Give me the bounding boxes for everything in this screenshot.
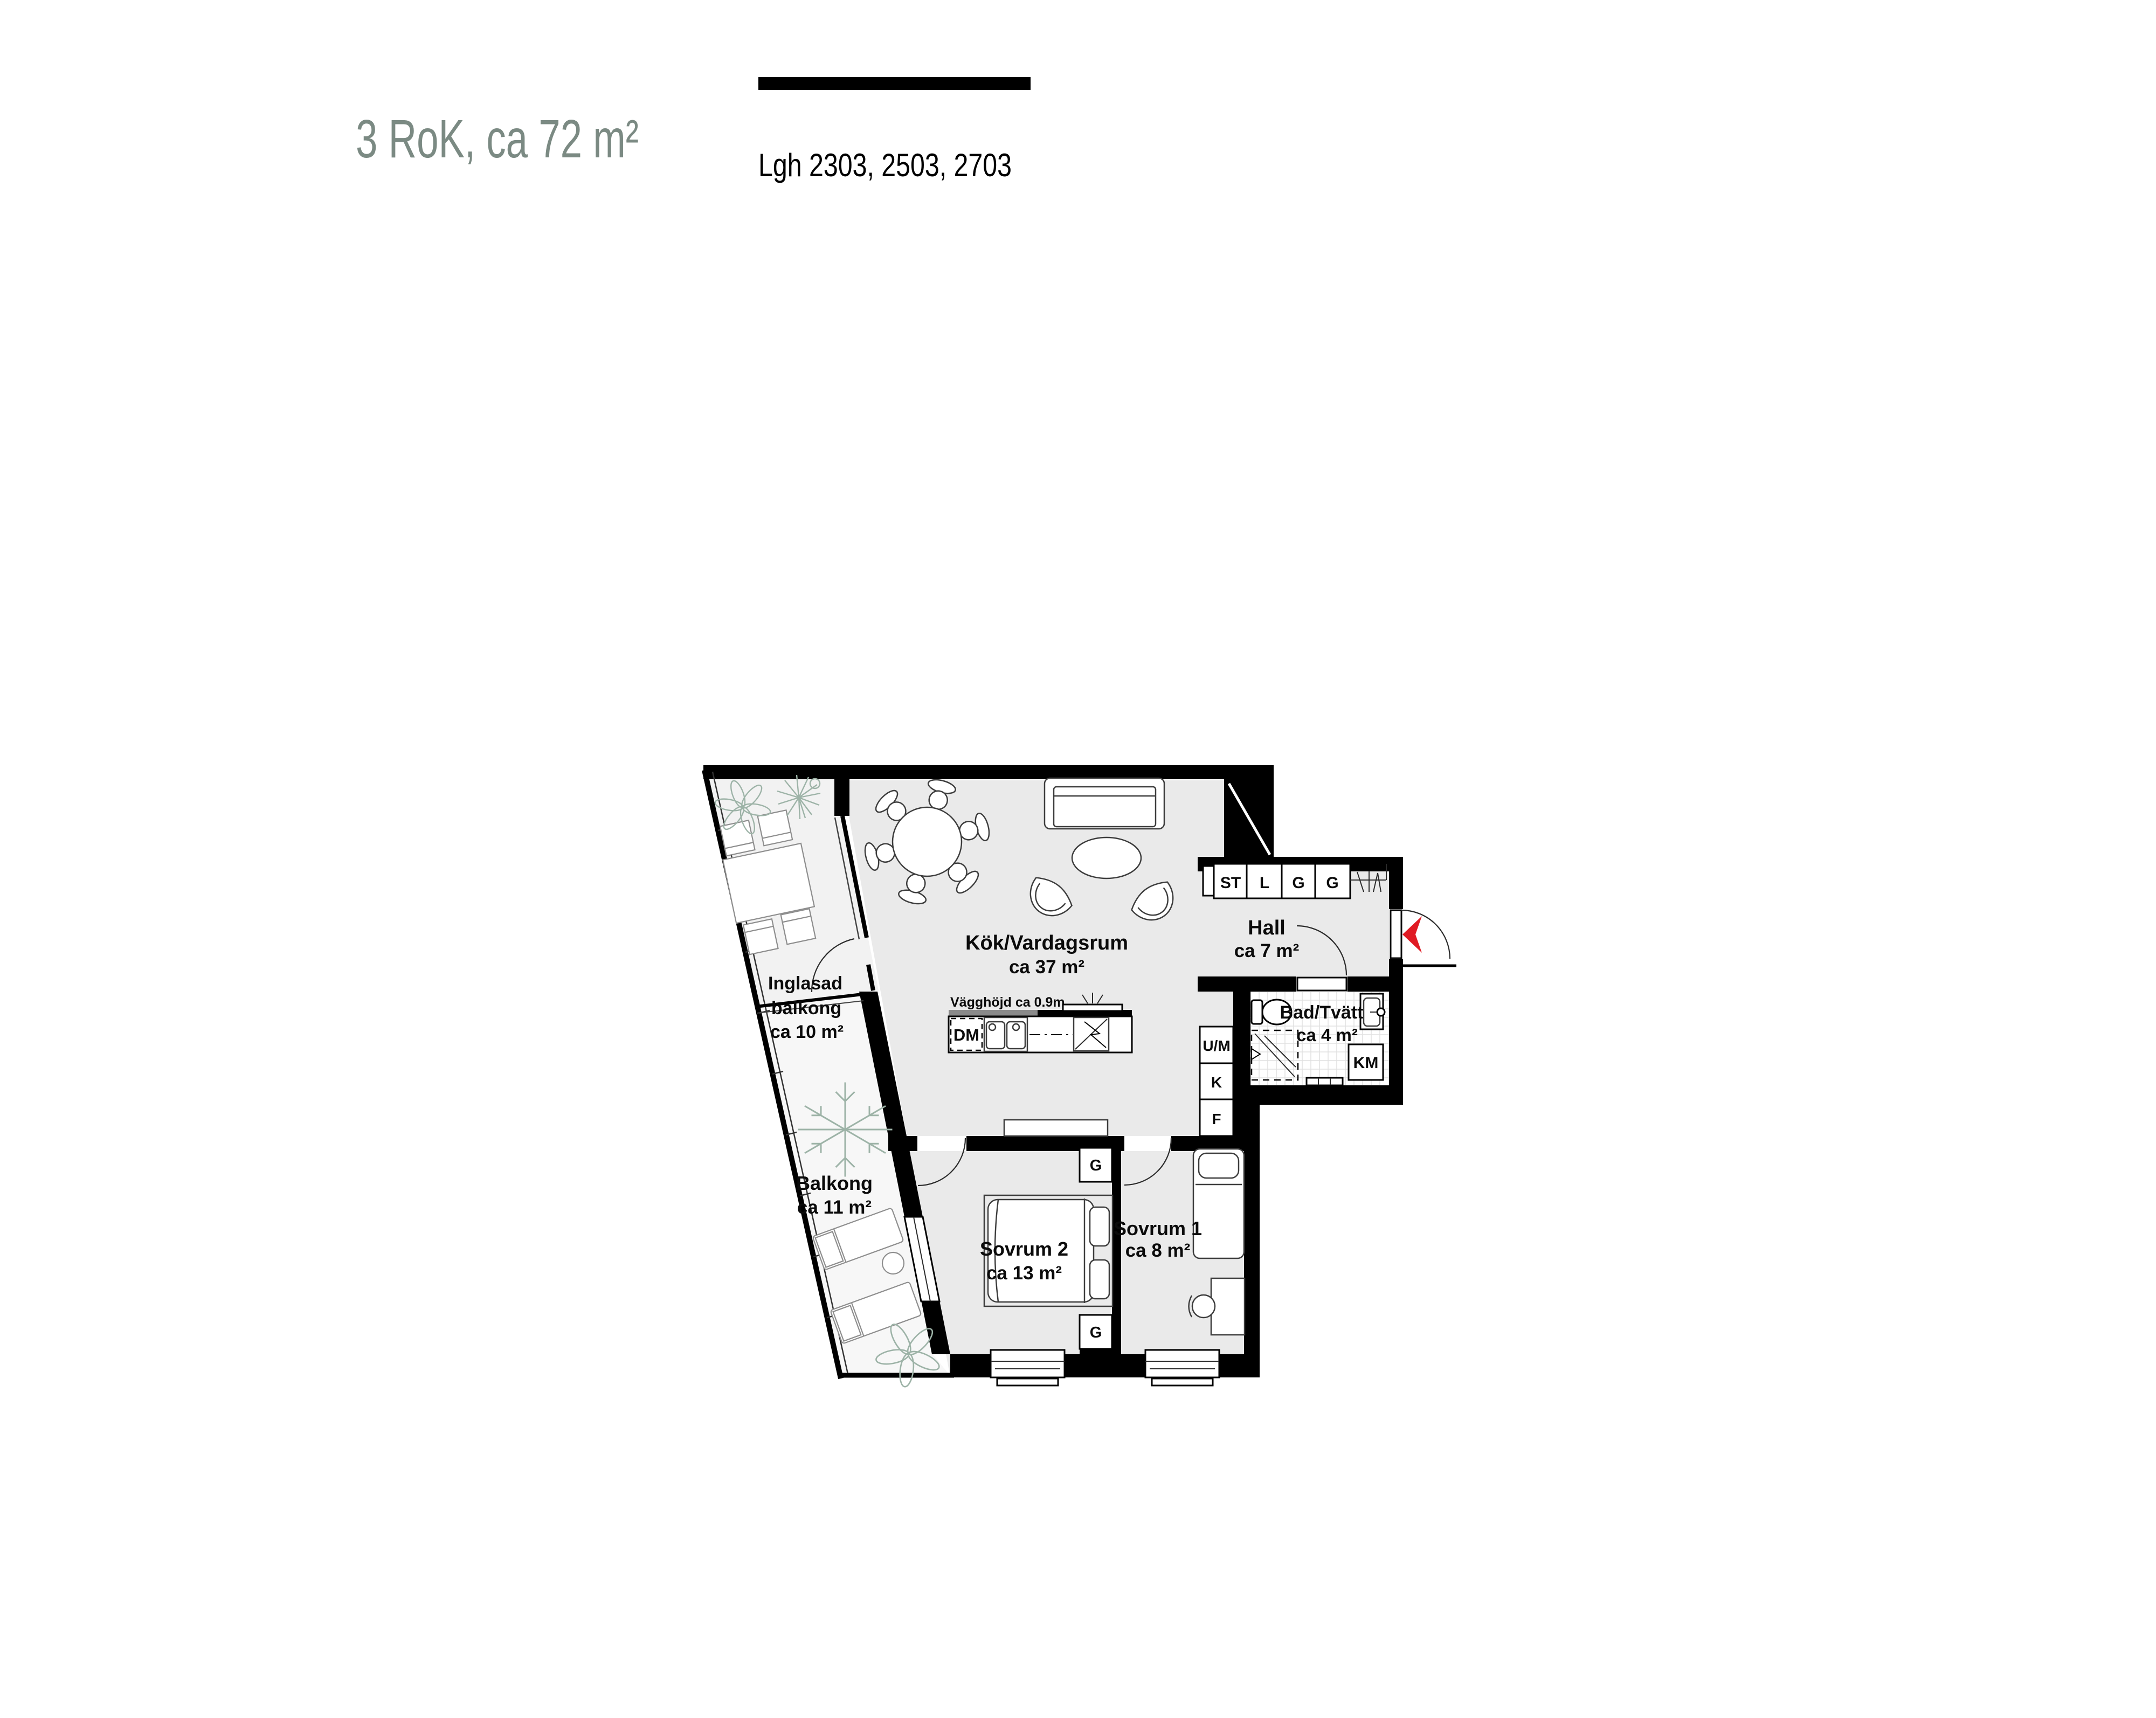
bedroom2-window [991, 1350, 1065, 1386]
bedroom2-name-label: Sovrum 2 [980, 1238, 1068, 1260]
bath-area-label: ca 4 m² [1296, 1025, 1358, 1045]
kitchen-living-area-label: ca 37 m² [1009, 957, 1084, 978]
hall-area-label: ca 7 m² [1234, 940, 1300, 961]
desk-chair [1192, 1295, 1215, 1318]
wall-hall-bottom-right [1347, 976, 1403, 992]
bath-sink-icon [1360, 994, 1385, 1029]
appliance-column: U/M K F [1200, 1027, 1233, 1136]
appliance-um-label: U/M [1203, 1037, 1230, 1054]
single-bed [1193, 1149, 1244, 1258]
desk [1211, 1278, 1245, 1335]
glazed-balcony-area-label: ca 10 m² [770, 1022, 844, 1042]
bedroom2-area-label: ca 13 m² [986, 1263, 1062, 1284]
entrance-arrow-icon [1402, 916, 1422, 953]
page-title: 3 RoK, ca 72 m² [356, 109, 639, 169]
entrance [1389, 909, 1456, 966]
wardrobe-row: ST L G G [1214, 864, 1350, 898]
bedroom2-wardrobe-bottom-label: G [1090, 1324, 1102, 1341]
bedroom1-name-label: Sovrum 1 [1114, 1217, 1202, 1239]
dishwasher: DM [951, 1019, 982, 1050]
wall-partition-top-block [834, 779, 849, 816]
bedroom2-wardrobe-top-label: G [1090, 1157, 1102, 1174]
sofa [1045, 778, 1164, 829]
appliance-f-label: F [1212, 1111, 1221, 1127]
wall-bedroom-divider [1112, 1138, 1121, 1354]
bedroom2-door-opening [917, 1136, 966, 1151]
wall-living-right [1233, 976, 1250, 1085]
wardrobe-row-endcap [1203, 866, 1214, 896]
glazed-balcony-name2-label: balkong [771, 998, 841, 1019]
wardrobe-g1-label: G [1292, 874, 1304, 892]
bedroom1-window [1145, 1350, 1219, 1386]
floorplan-page: 3 RoK, ca 72 m² Lgh 2303, 2503, 2703 [0, 0, 2156, 1718]
hall-name-label: Hall [1248, 917, 1286, 939]
wall-bath-bottom [1233, 1085, 1403, 1105]
kitchen-low-wall [949, 1010, 1038, 1016]
dining-table [893, 807, 962, 876]
wardrobe-st-label: ST [1220, 874, 1241, 892]
dishwasher-label: DM [953, 1026, 979, 1044]
bedroom1-door-opening [1124, 1136, 1171, 1151]
balcony-area-label: ca 11 m² [797, 1197, 872, 1218]
wall-height-note: Vägghöjd ca 0.9m [950, 995, 1065, 1010]
header-divider-bar [758, 77, 1031, 90]
wardrobe-g2-label: G [1326, 874, 1338, 892]
wall-right-above-entrance [1389, 871, 1403, 909]
washing-machine-label: KM [1353, 1054, 1379, 1072]
appliance-k-label: K [1211, 1074, 1222, 1091]
bath-door-leaf [1297, 978, 1346, 990]
header: 3 RoK, ca 72 m² Lgh 2303, 2503, 2703 [356, 77, 1031, 183]
wall-bedroom1-right [1244, 1136, 1260, 1377]
tv-bench [1004, 1120, 1108, 1136]
entrance-door-leaf [1391, 910, 1401, 958]
wardrobe-l-label: L [1260, 874, 1269, 892]
kitchen-living-name-label: Kök/Vardagsrum [965, 932, 1128, 954]
coffee-table [1072, 837, 1141, 878]
glazed-balcony-name1-label: Inglasad [768, 973, 842, 994]
wall-filler-above-g1 [1080, 1138, 1112, 1148]
bath-name-label: Bad/Tvätt [1280, 1002, 1364, 1023]
balcony-name-label: Balkong [796, 1172, 873, 1194]
bath-bench-icon [1307, 1078, 1343, 1085]
balcony-side-table [882, 1252, 904, 1274]
apartment-numbers-label: Lgh 2303, 2503, 2703 [758, 147, 1012, 183]
bedroom1-area-label: ca 8 m² [1125, 1240, 1191, 1261]
wall-top [703, 765, 1274, 779]
